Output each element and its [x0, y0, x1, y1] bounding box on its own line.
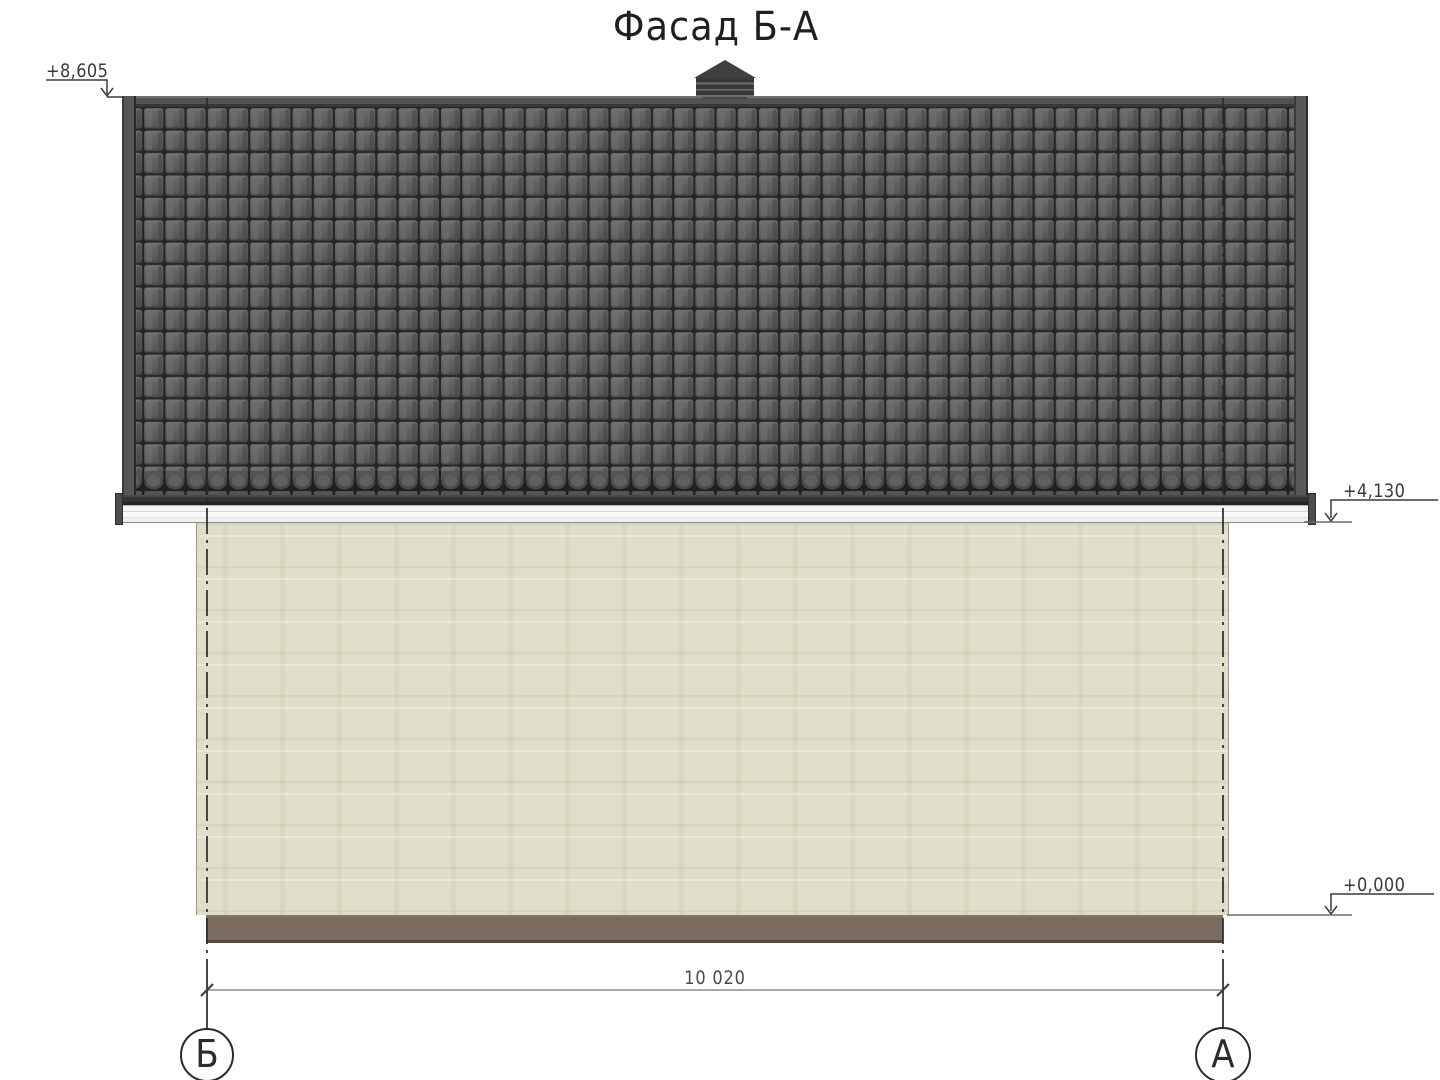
- roof-barge-right: [1294, 96, 1308, 495]
- drawing-title: Фасад Б-А: [613, 4, 819, 50]
- facade-drawing-sheet: Фасад Б-А: [0, 0, 1440, 1080]
- chimney-louvers: [696, 78, 754, 97]
- elevation-mark-ground: +0,000: [1343, 874, 1405, 896]
- gutter-end-cap-right: [1308, 493, 1316, 525]
- roof-eaves-gutter: [117, 495, 1312, 505]
- roof-barge-left: [122, 96, 136, 495]
- dimension-label: 10 020: [684, 967, 746, 989]
- roof-tiles: [122, 107, 1308, 495]
- wall: [196, 523, 1229, 915]
- elevation-mark-ridge: +8,605: [46, 60, 108, 82]
- leader-ground: [1227, 894, 1434, 915]
- gutter-end-cap-left: [115, 493, 123, 525]
- leader-ridge: [46, 80, 124, 97]
- axis-label-left: Б: [195, 1032, 218, 1076]
- roof-fascia: [117, 505, 1312, 523]
- leader-eaves: [1304, 500, 1438, 522]
- chimney-cap-icon: [694, 60, 756, 78]
- plinth: [206, 915, 1223, 943]
- elevation-mark-eaves: +4,130: [1343, 480, 1405, 502]
- axis-label-right: А: [1211, 1032, 1234, 1076]
